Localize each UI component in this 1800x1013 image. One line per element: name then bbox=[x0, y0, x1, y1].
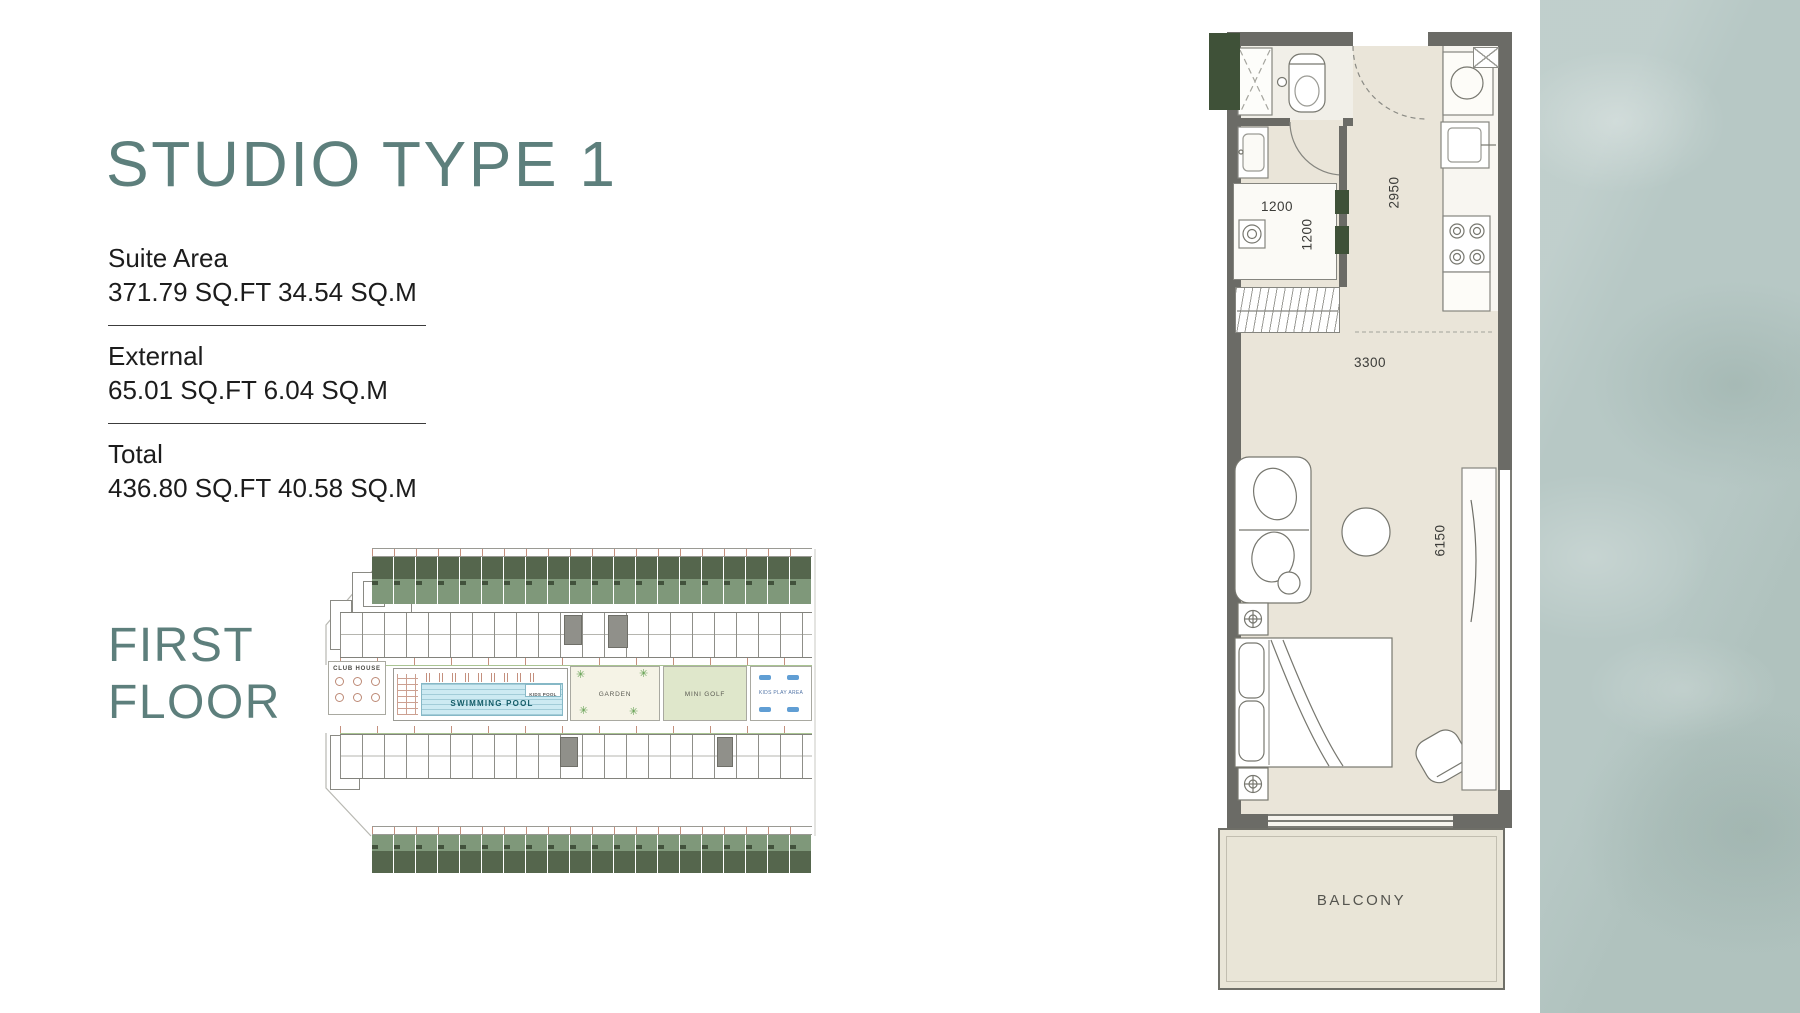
club-house-tables bbox=[329, 677, 385, 702]
dim-closet-depth: 1200 bbox=[1300, 211, 1315, 259]
texture-band bbox=[1540, 0, 1800, 1013]
bathroom-door-arc bbox=[1290, 122, 1343, 175]
site-plan: CLUB HOUSE SWIMMING POOL KIDS POOL ✳ ✳ ✳… bbox=[283, 545, 818, 840]
divider bbox=[108, 423, 426, 424]
balcony-strip-bottom bbox=[372, 826, 812, 835]
entry-door-arc bbox=[1353, 46, 1426, 119]
floor-plan-drawing bbox=[1205, 30, 1517, 992]
shaft-icon bbox=[1473, 47, 1499, 68]
washing-machine bbox=[1239, 220, 1265, 248]
dim-entry-depth: 2950 bbox=[1387, 169, 1402, 217]
divider bbox=[108, 325, 426, 326]
garden: ✳ ✳ ✳ ✳ GARDEN bbox=[570, 666, 660, 721]
kids-play-area-label: KIDS PLAY AREA bbox=[751, 690, 811, 696]
balcony-strip-top bbox=[372, 548, 812, 557]
kids-pool: KIDS POOL bbox=[525, 684, 561, 697]
swimming-pool-label: SWIMMING POOL bbox=[450, 699, 533, 708]
garden-label: GARDEN bbox=[571, 691, 659, 698]
closet-door-panel bbox=[1335, 190, 1349, 214]
shower bbox=[1238, 48, 1272, 115]
bed bbox=[1235, 638, 1392, 767]
vanity-sink bbox=[1238, 127, 1268, 178]
dim-room-width: 3300 bbox=[1346, 355, 1394, 370]
pool-loungers bbox=[426, 673, 534, 682]
play-equipment-icon bbox=[759, 707, 771, 712]
club-house: CLUB HOUSE bbox=[328, 661, 386, 715]
tv-console bbox=[1462, 468, 1496, 790]
floor-title: FIRST FLOOR bbox=[108, 618, 281, 731]
closet-door-panel bbox=[1335, 226, 1349, 254]
palm-icon: ✳ bbox=[576, 670, 585, 681]
elevator-core bbox=[564, 615, 582, 645]
total-area-value: 436.80 SQ.FT 40.58 SQ.M bbox=[108, 473, 430, 504]
play-equipment-icon bbox=[787, 707, 799, 712]
entry-door-opening bbox=[1353, 32, 1428, 46]
terrace-strip-bottom bbox=[340, 726, 812, 734]
palm-icon: ✳ bbox=[639, 669, 648, 680]
mini-golf-label: MINI GOLF bbox=[664, 691, 746, 698]
balcony-sliding-door bbox=[1268, 814, 1453, 828]
suite-area-value: 371.79 SQ.FT 34.54 SQ.M bbox=[108, 277, 430, 308]
window-right-wall bbox=[1498, 470, 1512, 790]
club-house-label: CLUB HOUSE bbox=[329, 666, 385, 672]
stair-core bbox=[608, 615, 628, 648]
kitchen-sink bbox=[1441, 122, 1496, 168]
stair-core bbox=[717, 737, 733, 767]
pool-deck: SWIMMING POOL KIDS POOL bbox=[393, 668, 568, 721]
sofa bbox=[1235, 457, 1311, 603]
base-cabinet bbox=[1443, 272, 1490, 311]
service-shaft-block bbox=[1209, 33, 1240, 110]
stove bbox=[1443, 216, 1490, 272]
dim-closet-width: 1200 bbox=[1253, 199, 1301, 214]
terrace-strip-top bbox=[340, 658, 812, 666]
elevator-core bbox=[560, 737, 578, 767]
nightstand-lamp bbox=[1238, 768, 1268, 800]
swimming-pool: SWIMMING POOL KIDS POOL bbox=[421, 683, 563, 716]
pool-side-tables bbox=[397, 674, 418, 715]
mini-golf: MINI GOLF bbox=[663, 666, 747, 721]
brochure-page: STUDIO TYPE 1 Suite Area 371.79 SQ.FT 34… bbox=[0, 0, 1800, 1013]
toilet bbox=[1278, 54, 1326, 112]
floor-title-line2: FLOOR bbox=[108, 675, 281, 732]
play-equipment-icon bbox=[759, 675, 771, 680]
floor-title-line1: FIRST bbox=[108, 618, 281, 675]
suite-area-label: Suite Area bbox=[108, 243, 430, 274]
nightstand-lamp bbox=[1238, 603, 1268, 635]
page-title: STUDIO TYPE 1 bbox=[106, 127, 617, 201]
external-area-value: 65.01 SQ.FT 6.04 SQ.M bbox=[108, 375, 430, 406]
play-equipment-icon bbox=[787, 675, 799, 680]
external-area-label: External bbox=[108, 341, 430, 372]
total-area-label: Total bbox=[108, 439, 430, 470]
studio-floor-plan: 1200 1200 2950 3300 6150 BALCONY bbox=[1205, 30, 1517, 992]
palm-icon: ✳ bbox=[579, 706, 588, 717]
kids-pool-label: KIDS POOL bbox=[529, 692, 556, 697]
area-summary: Suite Area 371.79 SQ.FT 34.54 SQ.M Exter… bbox=[108, 243, 430, 504]
dim-room-length: 6150 bbox=[1433, 517, 1448, 565]
kids-play-area: KIDS PLAY AREA bbox=[750, 666, 812, 721]
units-row-top bbox=[372, 557, 812, 604]
palm-icon: ✳ bbox=[629, 707, 638, 718]
coffee-table bbox=[1342, 508, 1390, 556]
